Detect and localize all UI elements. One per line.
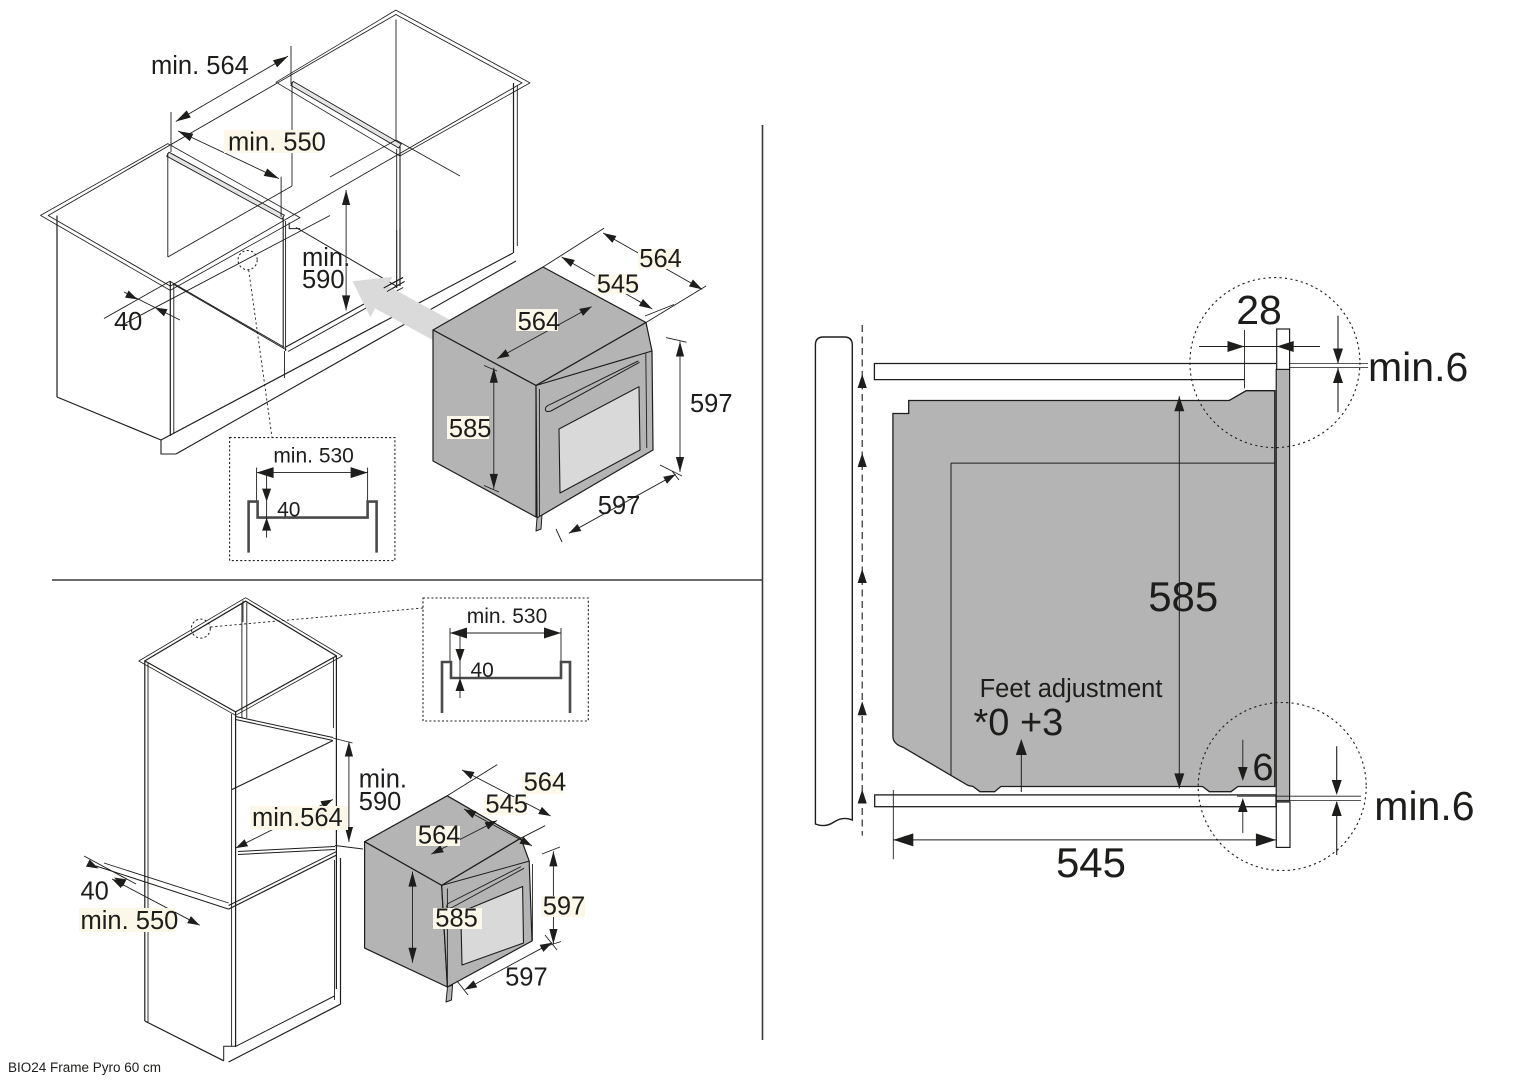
svg-text:40: 40 xyxy=(81,878,109,906)
svg-text:min. 530: min. 530 xyxy=(273,445,354,468)
svg-text:564: 564 xyxy=(418,821,461,849)
svg-text:597: 597 xyxy=(598,492,641,520)
svg-text:min. 564: min. 564 xyxy=(151,52,249,80)
svg-text:Feet adjustment: Feet adjustment xyxy=(980,675,1163,703)
svg-text:BIO24 Frame Pyro 60 cm: BIO24 Frame Pyro 60 cm xyxy=(8,1060,161,1075)
svg-text:40: 40 xyxy=(114,308,142,336)
svg-text:545: 545 xyxy=(1056,839,1126,886)
svg-text:597: 597 xyxy=(543,893,586,921)
svg-text:585: 585 xyxy=(435,905,478,933)
svg-text:597: 597 xyxy=(690,390,733,418)
svg-text:585: 585 xyxy=(1148,573,1218,620)
svg-text:min.564: min.564 xyxy=(252,804,343,832)
svg-text:6: 6 xyxy=(1252,747,1273,789)
svg-text:590: 590 xyxy=(302,266,345,294)
svg-text:40: 40 xyxy=(471,659,494,682)
svg-text:min. 550: min. 550 xyxy=(228,129,326,157)
svg-text:min. 550: min. 550 xyxy=(81,907,179,935)
svg-text:585: 585 xyxy=(449,415,492,443)
svg-text:min. 530: min. 530 xyxy=(467,605,548,628)
svg-text:564: 564 xyxy=(639,245,682,273)
svg-text:min.6: min.6 xyxy=(1374,783,1474,829)
svg-text:min.6: min.6 xyxy=(1368,344,1468,390)
svg-text:545: 545 xyxy=(597,271,640,299)
svg-text:28: 28 xyxy=(1236,287,1282,333)
svg-text:564: 564 xyxy=(518,308,561,336)
svg-text:564: 564 xyxy=(524,769,567,797)
svg-text:40: 40 xyxy=(277,499,300,522)
svg-text:545: 545 xyxy=(485,791,528,819)
svg-text:597: 597 xyxy=(505,964,548,992)
svg-text:590: 590 xyxy=(359,788,402,816)
svg-text:*0 +3: *0 +3 xyxy=(974,702,1064,744)
